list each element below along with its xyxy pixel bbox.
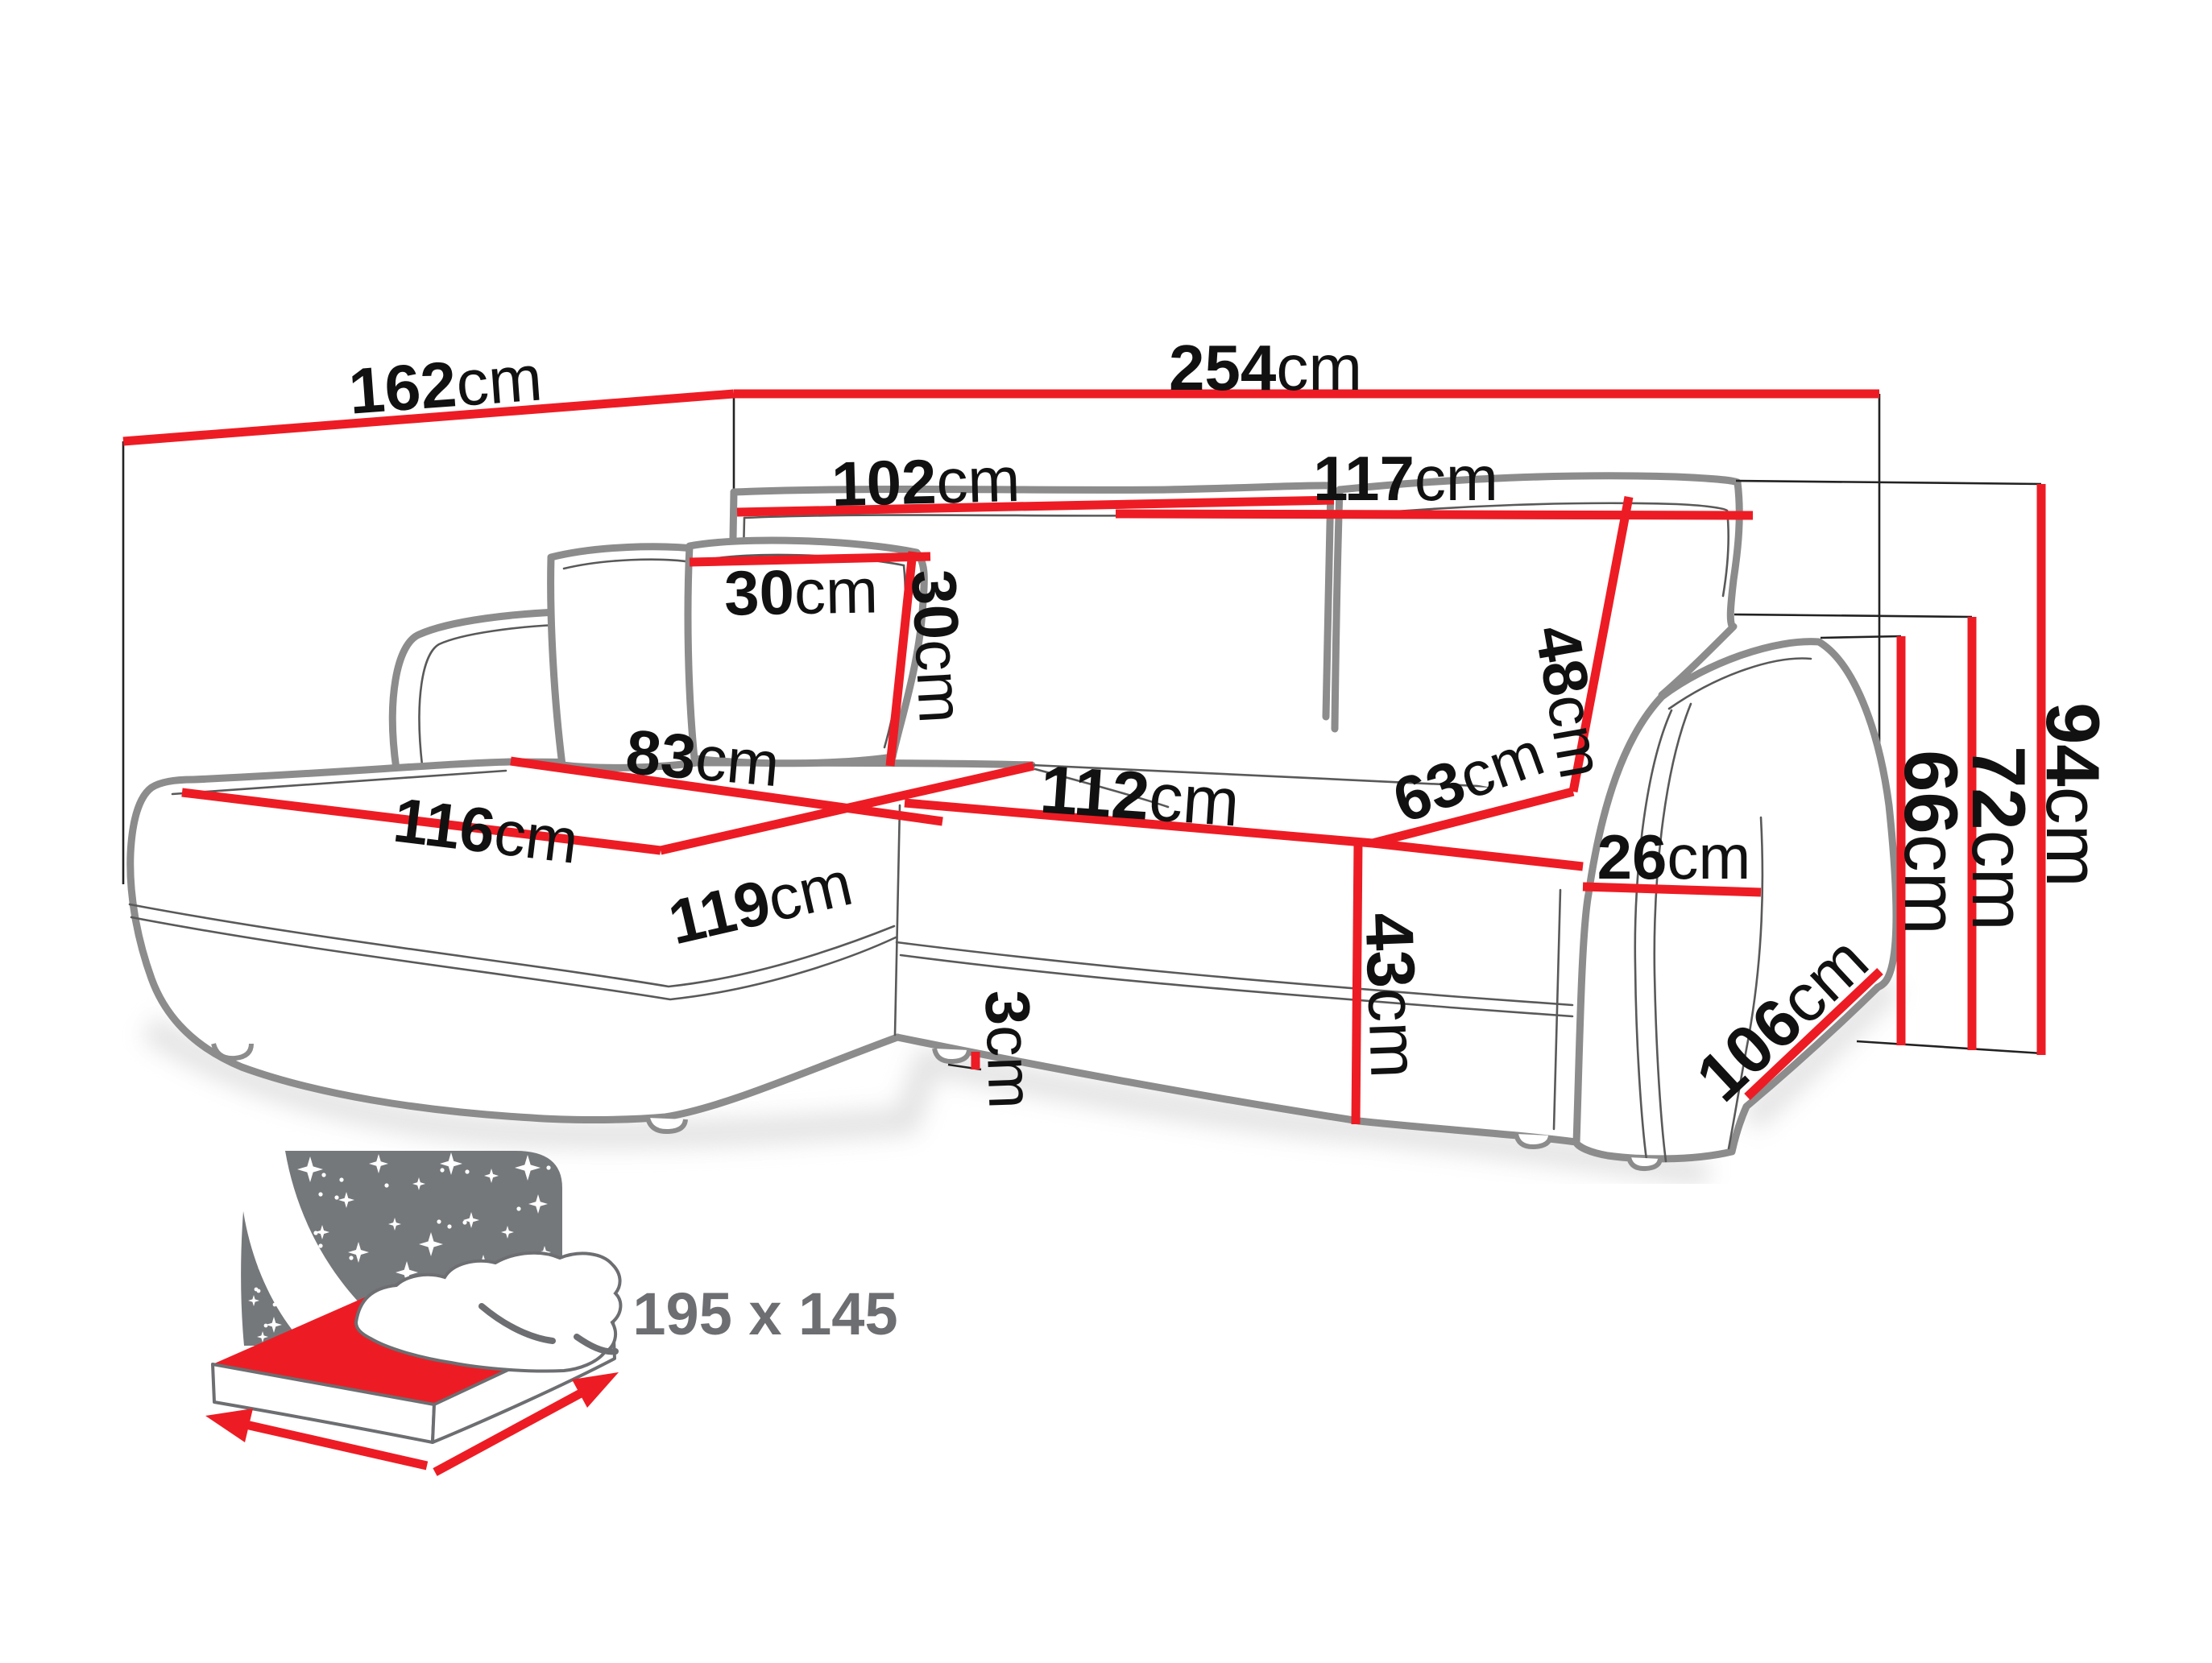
svg-text:94cm: 94cm [2031, 702, 2115, 887]
svg-text:83cm: 83cm [623, 716, 783, 800]
svg-text:254cm: 254cm [1169, 332, 1362, 403]
svg-text:72cm: 72cm [1957, 746, 2041, 931]
svg-text:43cm: 43cm [1351, 912, 1432, 1080]
svg-text:102cm: 102cm [831, 444, 1021, 519]
svg-text:3cm: 3cm [971, 989, 1046, 1110]
svg-text:112cm: 112cm [1038, 751, 1241, 841]
svg-text:30cm: 30cm [898, 568, 977, 725]
svg-text:26cm: 26cm [1597, 821, 1751, 892]
svg-text:30cm: 30cm [723, 555, 878, 628]
svg-text:117cm: 117cm [1313, 443, 1498, 514]
svg-text:195 x 145: 195 x 145 [632, 1280, 897, 1347]
svg-text:162cm: 162cm [346, 341, 545, 427]
